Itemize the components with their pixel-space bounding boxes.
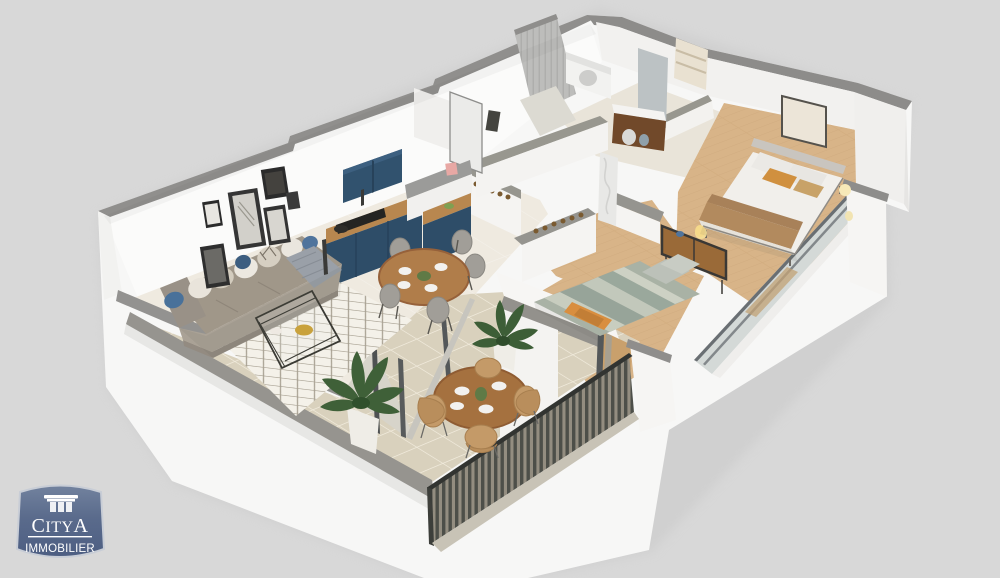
svg-text:IMMOBILIER: IMMOBILIER bbox=[25, 543, 95, 555]
svg-text:CITYA: CITYA bbox=[32, 515, 89, 537]
